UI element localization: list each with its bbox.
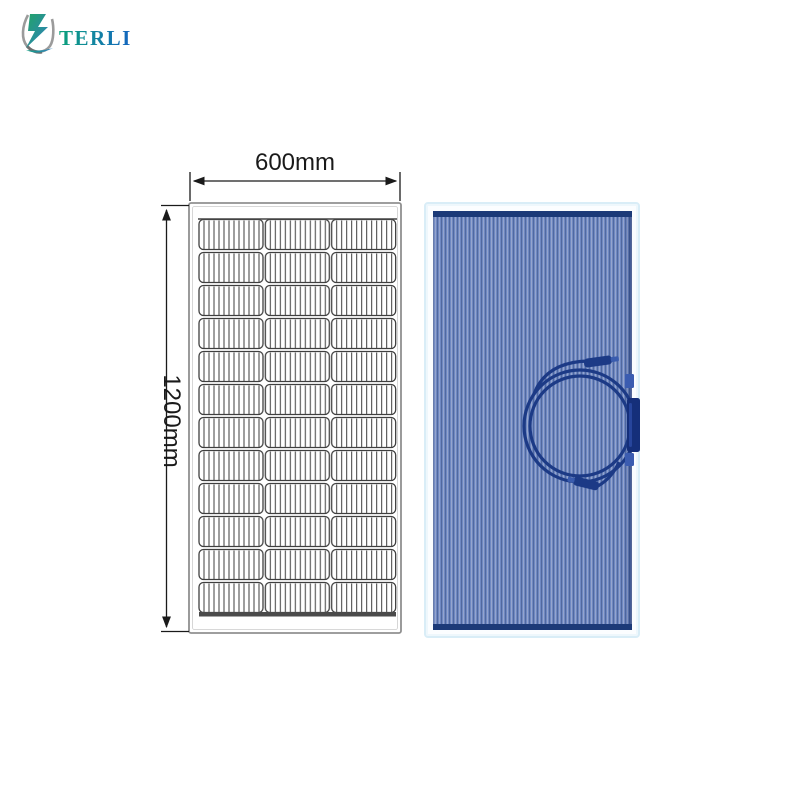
height-dimension-label: 1200mm <box>158 360 184 482</box>
solar-panel-photo <box>424 202 640 638</box>
solar-panel-technical-drawing <box>0 0 800 800</box>
product-image: TERLI <box>0 0 800 800</box>
junction-box <box>625 374 640 466</box>
coiled-cable <box>524 361 636 486</box>
width-dimension-label: 600mm <box>235 149 355 177</box>
cable-and-junction-box <box>426 204 642 640</box>
cell-grid <box>198 218 397 617</box>
mc4-connector-top <box>583 354 619 368</box>
